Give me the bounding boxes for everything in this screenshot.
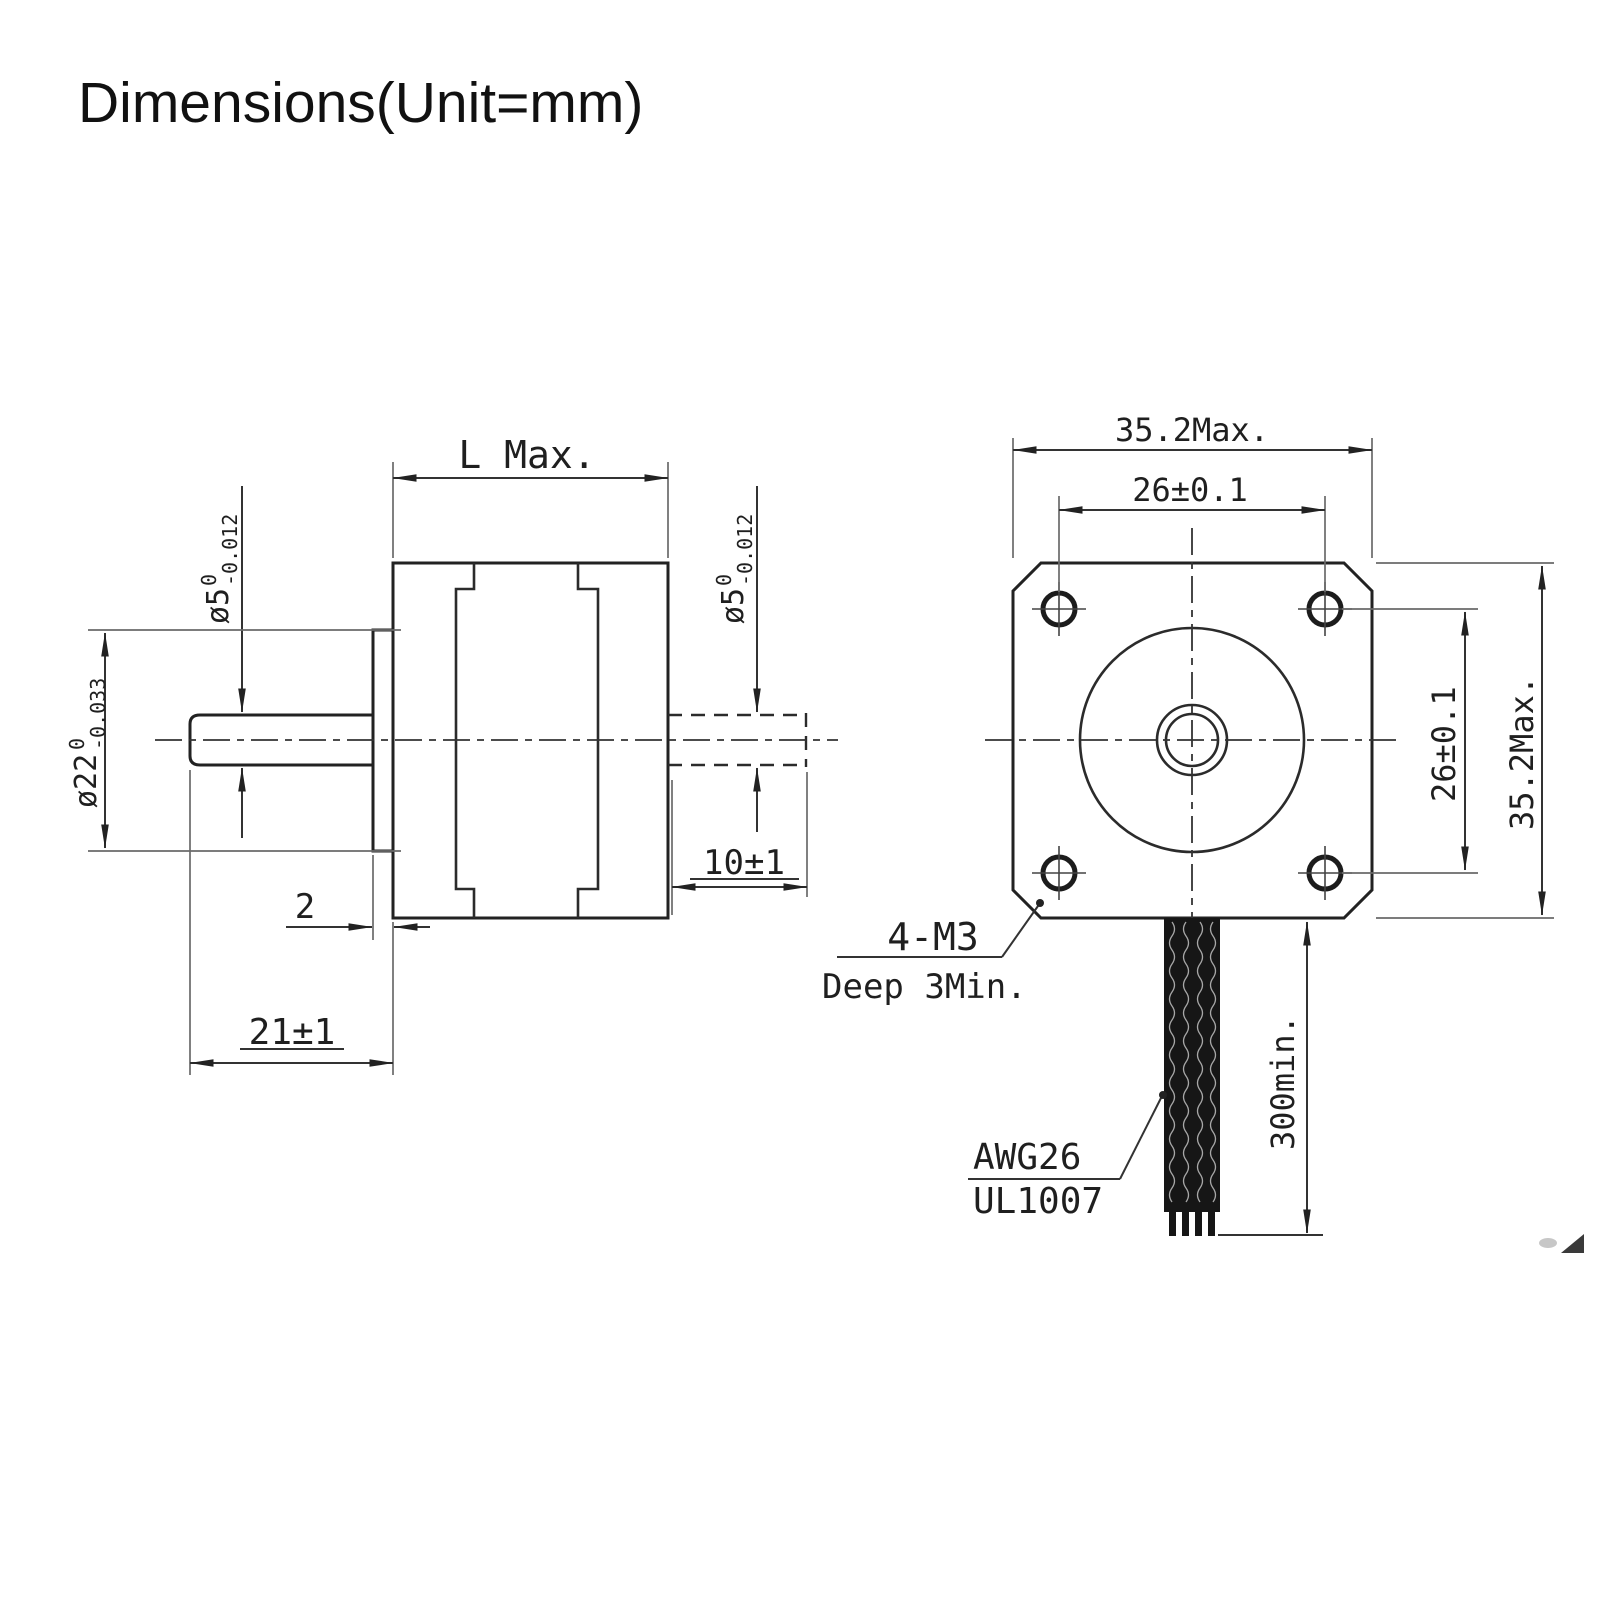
svg-text:300min.: 300min. (1264, 1015, 1302, 1150)
hole-spacing-horizontal-label: 26±0.1 (1132, 471, 1248, 509)
cable-bundle (1164, 918, 1220, 1236)
svg-text:35.2Max.: 35.2Max. (1503, 676, 1541, 830)
length-dimension-label: L Max. (458, 433, 595, 477)
cable-note-line1: AWG26 (973, 1137, 1081, 1178)
mounting-holes-note-line1: 4-M3 (887, 915, 979, 959)
lead-wire (1195, 1212, 1202, 1236)
svg-text:26±0.1: 26±0.1 (1425, 686, 1463, 802)
dia-lower-tol: -0.012 (733, 514, 757, 586)
hole-spacing-vertical-label: 26±0.1 (1425, 686, 1463, 802)
pilot-diameter-label: ø22 0 -0.033 (65, 678, 110, 808)
rear-shaft-diameter-label: ø5 0 -0.012 (712, 514, 757, 624)
boss-depth-label: 2 (295, 887, 315, 927)
mounting-holes-note-line2: Deep 3Min. (822, 967, 1027, 1007)
dia-lower-tol: -0.012 (218, 514, 242, 586)
cable-length-label: 300min. (1264, 1015, 1302, 1150)
leader-dot (1036, 899, 1044, 907)
page-title: Dimensions(Unit=mm) (78, 71, 643, 135)
dia-nominal: ø22 (69, 754, 104, 808)
dimension-drawing-page: Dimensions(Unit=mm) L Max. ø5 0 -0.012 (0, 0, 1600, 1600)
motor-front-view: 35.2Max. 26±0.1 26±0.1 35.2Max. 4-M3 Dee… (822, 411, 1554, 1236)
lead-wire (1208, 1212, 1215, 1236)
leader-dot (1159, 1091, 1167, 1099)
width-max-label: 35.2Max. (1115, 411, 1269, 449)
rear-shaft-length-label: 10±1 (703, 843, 785, 883)
height-max-label: 35.2Max. (1503, 676, 1541, 830)
dimension-drawing: Dimensions(Unit=mm) L Max. ø5 0 -0.012 (0, 0, 1600, 1600)
mounting-holes-leader-line (1002, 906, 1038, 957)
dia-lower-tol: -0.033 (86, 678, 110, 750)
dia-nominal: ø5 (716, 588, 751, 624)
lead-wire (1182, 1212, 1189, 1236)
lead-wire (1169, 1212, 1176, 1236)
motor-side-view: L Max. ø5 0 -0.012 ø5 0 -0.012 ø22 0 -0.… (65, 433, 838, 1075)
cable-note-line2: UL1007 (973, 1181, 1103, 1222)
dia-nominal: ø5 (201, 588, 236, 624)
cable-leader-line (1120, 1098, 1161, 1179)
front-shaft-diameter-label: ø5 0 -0.012 (197, 514, 242, 624)
front-shaft-length-label: 21±1 (249, 1012, 336, 1053)
mounting-hole-bottom-left (1032, 846, 1086, 900)
corner-artifact (1539, 1234, 1584, 1253)
